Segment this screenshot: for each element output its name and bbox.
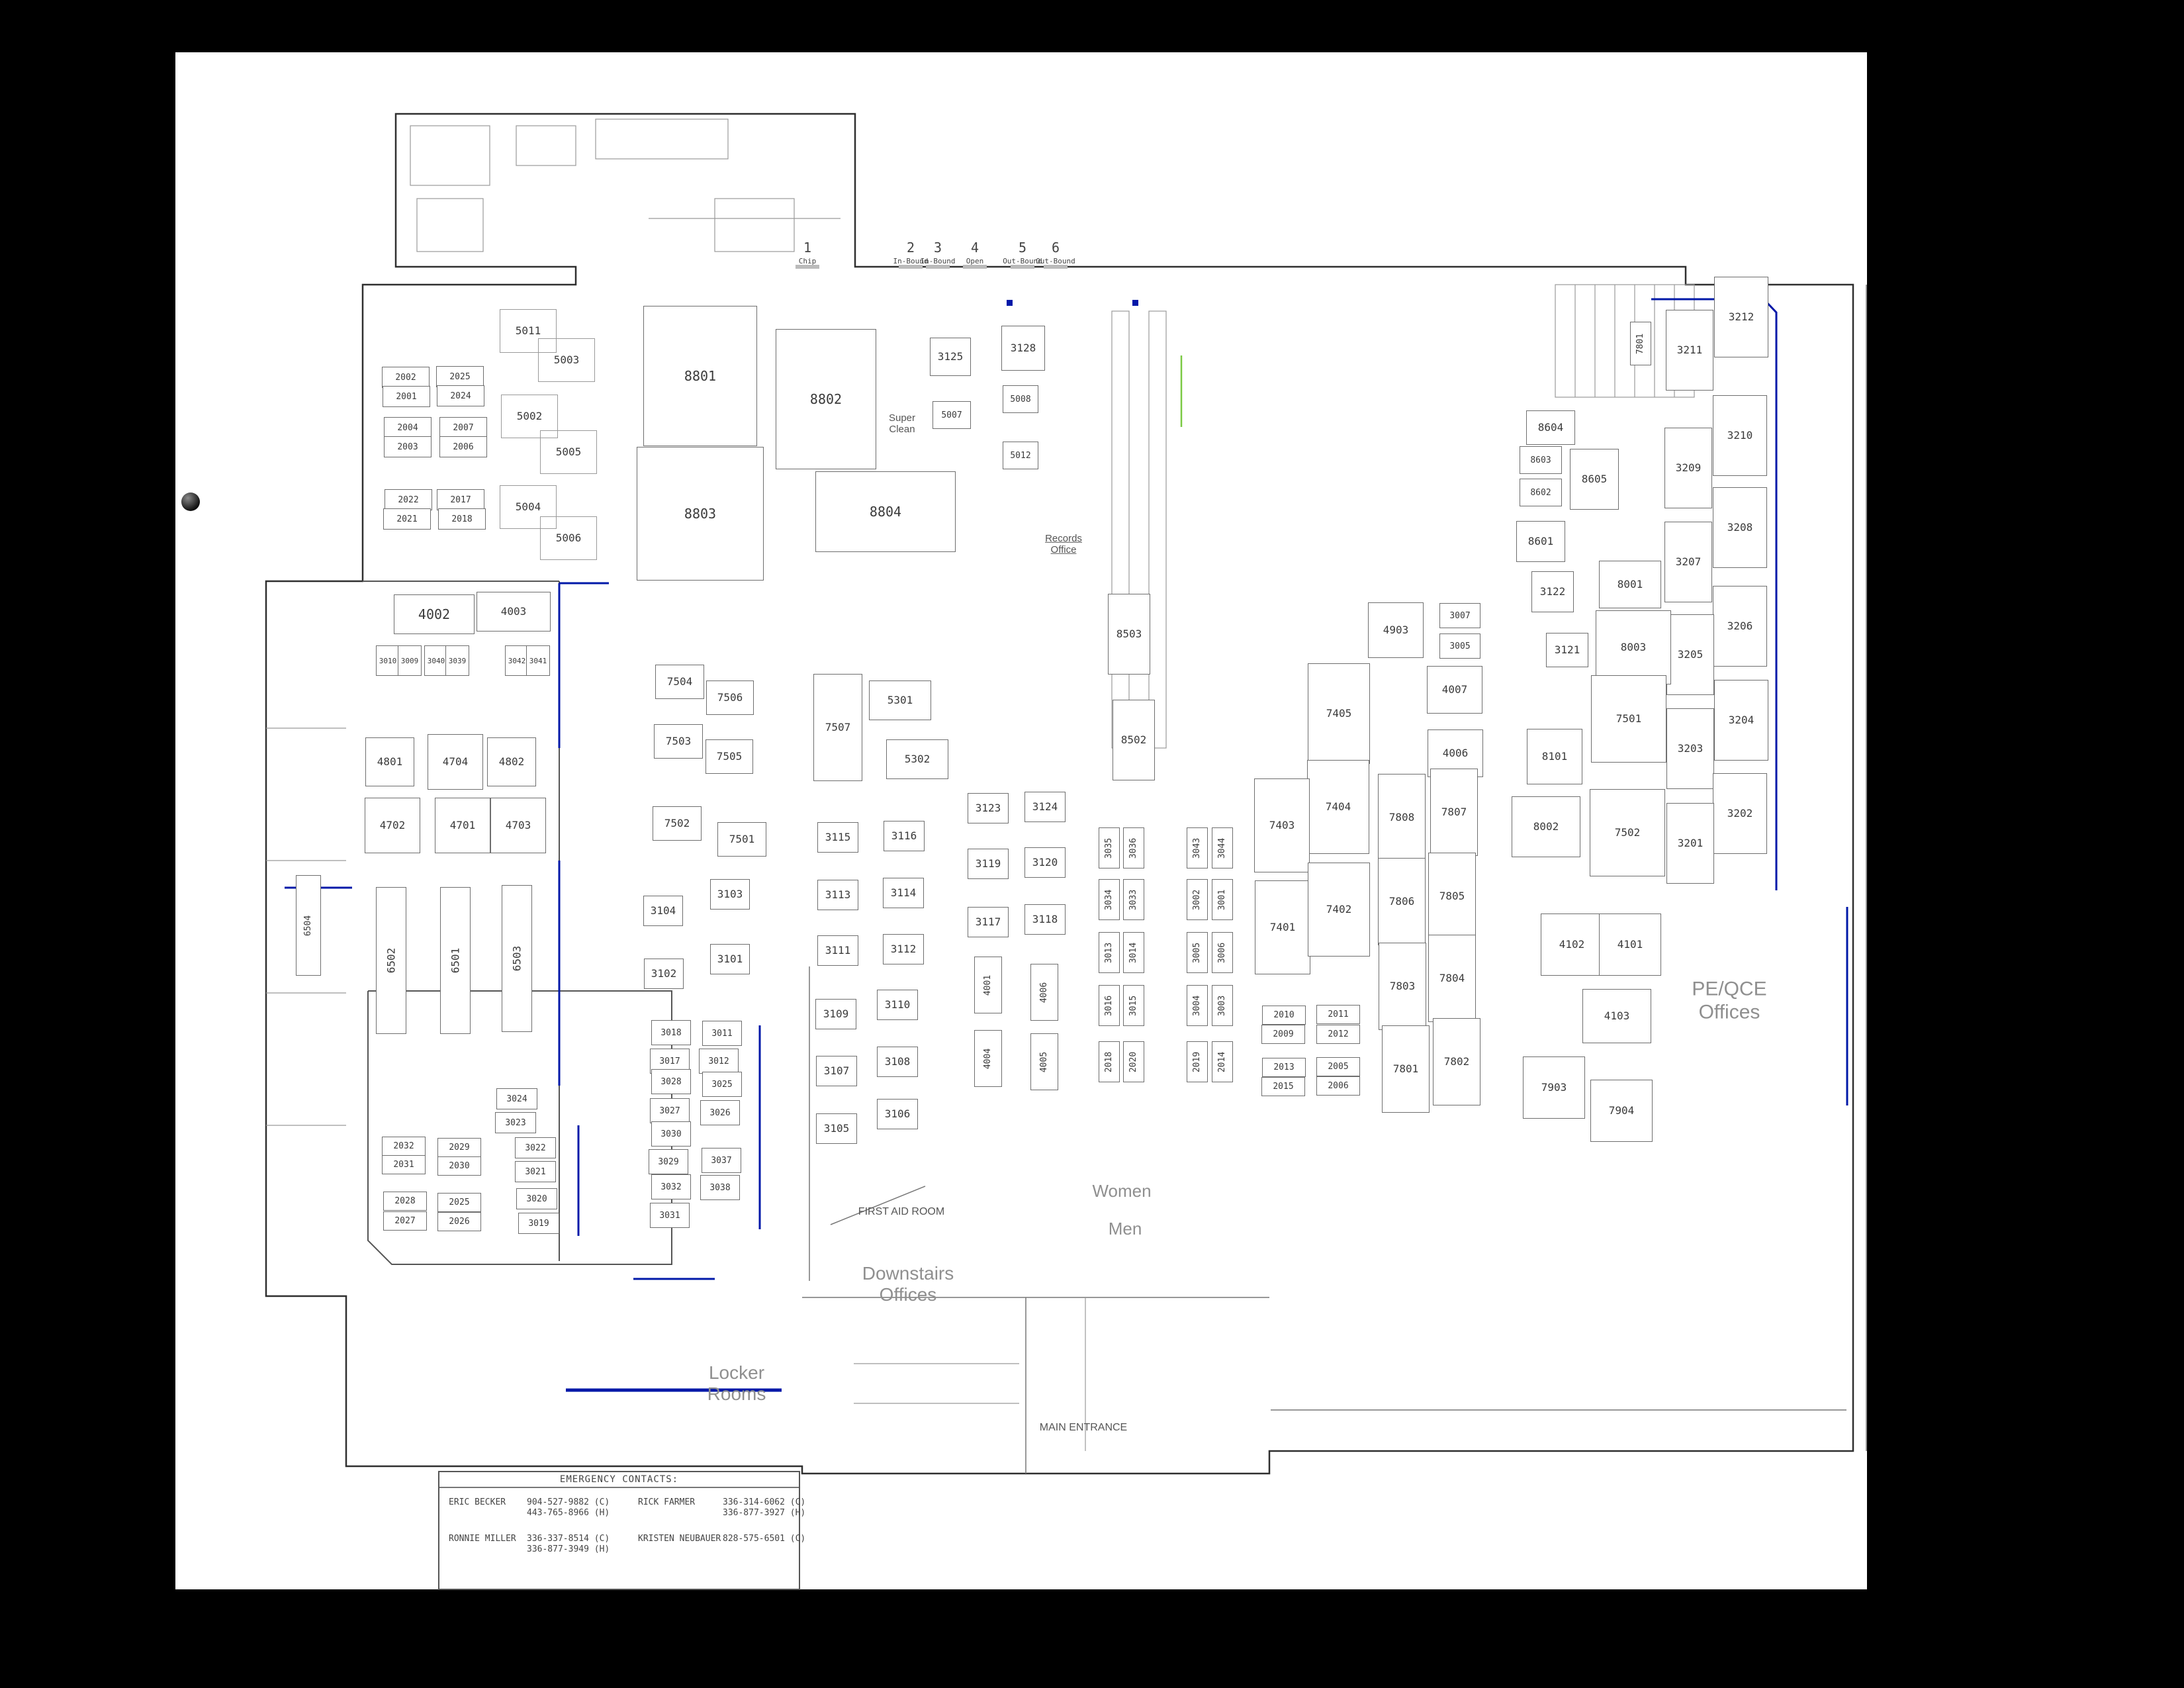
room-box: 7904 [1590, 1080, 1653, 1142]
room-label: 3203 [1678, 743, 1704, 754]
room-label: 3039 [449, 657, 467, 665]
room-box: 7808 [1378, 774, 1426, 861]
room-box: 2004 [384, 417, 432, 438]
room-label: 3032 [660, 1183, 681, 1192]
room-label: 3037 [711, 1156, 731, 1165]
area-label: Women [1092, 1182, 1151, 1201]
contact-phone: 336-314-6062 (C) [723, 1497, 808, 1508]
room-box: 2020 [1123, 1041, 1144, 1082]
room-box: 7501 [1591, 675, 1666, 763]
room-label: 4802 [499, 757, 525, 767]
room-label: 8601 [1528, 536, 1554, 547]
room-label: 3019 [528, 1219, 549, 1228]
room-label: 3113 [825, 890, 851, 900]
room-label: 7904 [1609, 1105, 1635, 1116]
room-box: 8803 [637, 447, 764, 581]
dock-number: 4 [948, 240, 1001, 256]
room-box: 7504 [655, 665, 704, 699]
room-label: 3014 [1130, 942, 1138, 962]
room-box: 3115 [817, 822, 858, 853]
room-label: 3119 [976, 859, 1001, 869]
room-box: 3005 [1187, 932, 1208, 973]
room-box: 2011 [1316, 1005, 1360, 1024]
room-box: 7801 [1382, 1025, 1430, 1113]
room-label: 4003 [501, 606, 527, 617]
room-label: 4007 [1442, 684, 1468, 695]
room-label: 3122 [1540, 586, 1566, 597]
room-label: 4801 [377, 757, 403, 767]
room-box: 3103 [710, 879, 750, 910]
room-label: 8603 [1530, 456, 1551, 465]
room-label: 7801 [1393, 1064, 1419, 1074]
room-label: 2007 [453, 424, 473, 432]
room-label: 5007 [941, 411, 962, 420]
room-box: 8002 [1512, 796, 1580, 857]
room-box: 2013 [1262, 1058, 1306, 1077]
room-box: 3020 [516, 1188, 557, 1209]
room-box: 2006 [1316, 1076, 1360, 1096]
room-label: 3120 [1032, 857, 1058, 868]
room-label: 3042 [508, 657, 526, 665]
room-box: 3034 [1099, 879, 1120, 920]
room-box: 7502 [1590, 789, 1665, 876]
room-box: 7507 [813, 674, 862, 781]
room-label: 5002 [517, 411, 543, 422]
contact-name: RONNIE MILLER [449, 1534, 527, 1556]
room-box: 5003 [538, 338, 595, 382]
room-box: 7802 [1433, 1018, 1480, 1105]
room-box: 3205 [1666, 614, 1714, 695]
dock-number: 1 [781, 240, 834, 256]
room-box: 3035 [1099, 827, 1120, 868]
room-label: 5004 [516, 502, 541, 512]
room-label: 8001 [1617, 579, 1643, 590]
room-label: 7801 [1637, 333, 1645, 353]
room-label: 3207 [1676, 557, 1702, 567]
room-label: 3012 [708, 1057, 729, 1066]
room-label: 3023 [505, 1119, 525, 1127]
room-label: 3001 [1218, 889, 1227, 910]
dock-label: 6Out-Bound [1029, 240, 1082, 265]
room-label: 4002 [418, 608, 450, 621]
room-label: 4101 [1617, 939, 1643, 950]
room-label: 4001 [984, 974, 993, 995]
room-box: 3107 [816, 1056, 857, 1086]
room-box: 4903 [1368, 602, 1424, 658]
emergency-contacts-grid: ERIC BECKER904-527-9882 (C)443-765-8966 … [439, 1488, 799, 1555]
room-box: 3112 [883, 934, 924, 964]
room-box: 4802 [487, 737, 536, 786]
room-label: 7505 [717, 751, 743, 762]
room-box: 4704 [428, 734, 483, 790]
room-box: 3104 [643, 896, 683, 926]
room-label: 7403 [1269, 820, 1295, 831]
room-box: 3006 [1212, 932, 1233, 973]
room-box: 3013 [1099, 932, 1120, 973]
room-label: 7503 [666, 736, 692, 747]
contact-phones: 336-337-8514 (C)336-877-3949 (H) [527, 1534, 638, 1556]
room-box: 3117 [968, 907, 1009, 937]
room-label: 6503 [512, 946, 522, 972]
room-box: 2003 [384, 436, 432, 457]
room-box: 3010 [376, 645, 400, 676]
room-label: 5012 [1010, 451, 1030, 460]
room-box: 3207 [1664, 522, 1712, 602]
room-label: 8605 [1582, 474, 1608, 485]
room-label: 3016 [1105, 995, 1114, 1015]
dock-type: Open [948, 257, 1001, 265]
room-box: 2030 [437, 1156, 481, 1176]
room-box: 5007 [933, 401, 971, 429]
contact-phones: 828-575-6501 (C) [723, 1534, 808, 1556]
room-label: 7507 [825, 722, 851, 733]
room-label: 7501 [729, 834, 755, 845]
room-label: 7502 [664, 818, 690, 829]
room-label: 7405 [1326, 708, 1352, 719]
room-box: 3003 [1212, 985, 1233, 1026]
room-label: 7804 [1439, 973, 1465, 984]
floor-plan-walls [0, 0, 2184, 1688]
room-label: 2001 [396, 393, 416, 401]
contact-name: RICK FARMER [638, 1497, 723, 1519]
room-label: 8101 [1542, 751, 1568, 762]
room-label: 4702 [380, 820, 406, 831]
room-box: 4703 [490, 798, 546, 853]
room-box: 5301 [869, 680, 931, 720]
room-label: 2025 [449, 373, 470, 381]
area-label: MAIN ENTRANCE [1040, 1422, 1127, 1434]
room-box: 4701 [435, 798, 490, 853]
room-box: 3111 [817, 935, 858, 966]
room-box: 3025 [702, 1072, 742, 1097]
room-box: 8804 [815, 471, 956, 552]
room-label: 3036 [1130, 837, 1138, 858]
room-label: 3010 [379, 657, 397, 665]
room-box: 8001 [1599, 561, 1661, 608]
room-box: 2012 [1316, 1025, 1360, 1044]
room-box: 2002 [382, 367, 430, 388]
room-label: 3026 [709, 1109, 730, 1117]
room-label: 3117 [976, 917, 1001, 927]
room-box: 8605 [1570, 449, 1619, 510]
area-label: Locker Rooms [707, 1362, 766, 1405]
room-label: 2029 [449, 1143, 469, 1152]
room-box: 8502 [1113, 700, 1155, 780]
room-label: 5008 [1010, 395, 1030, 404]
room-label: 2005 [1328, 1062, 1348, 1071]
room-label: 8803 [684, 507, 716, 520]
room-box: 7405 [1308, 663, 1370, 764]
room-label: 3020 [526, 1195, 547, 1203]
room-box: 6504 [296, 875, 321, 976]
room-box: 3118 [1024, 904, 1066, 935]
room-box: 4001 [974, 957, 1002, 1013]
room-label: 2028 [394, 1197, 415, 1205]
room-box: 3211 [1666, 310, 1713, 391]
room-label: 5301 [887, 695, 913, 706]
room-label: 8802 [810, 393, 842, 406]
room-box: 2010 [1262, 1006, 1306, 1025]
room-box: 3203 [1666, 708, 1714, 789]
room-box: 3001 [1212, 879, 1233, 920]
room-label: 5302 [905, 754, 931, 765]
room-label: 3101 [717, 954, 743, 964]
area-label: Super Clean [889, 412, 915, 436]
room-box: 8603 [1520, 446, 1562, 474]
room-box: 3011 [702, 1021, 742, 1046]
room-box: 3209 [1664, 428, 1712, 508]
room-label: 7802 [1444, 1056, 1470, 1067]
room-box: 3128 [1001, 326, 1045, 371]
room-box: 2022 [385, 489, 432, 510]
room-label: 3104 [651, 906, 676, 916]
room-label: 3212 [1729, 312, 1754, 322]
room-box: 2031 [382, 1155, 426, 1174]
room-label: 7806 [1389, 896, 1415, 907]
room-label: 3011 [711, 1029, 732, 1038]
room-box: 3004 [1187, 985, 1208, 1026]
room-box: 2006 [439, 436, 487, 457]
room-box: 7804 [1428, 935, 1476, 1022]
room-box: 7502 [653, 806, 702, 841]
room-box: 2001 [383, 386, 430, 407]
area-label: Downstairs Offices [862, 1263, 954, 1305]
room-box: 2025 [436, 366, 484, 387]
room-label: 3034 [1105, 889, 1114, 910]
room-label: 3102 [651, 968, 677, 979]
room-label: 3108 [885, 1056, 911, 1067]
room-label: 3021 [525, 1168, 545, 1176]
room-label: 8003 [1621, 642, 1647, 653]
room-label: 2006 [1328, 1082, 1348, 1090]
area-label: Men [1109, 1219, 1142, 1239]
room-box: 4006 [1030, 964, 1058, 1021]
room-label: 3209 [1676, 463, 1702, 473]
room-box: 7403 [1254, 778, 1310, 872]
room-box: 4002 [394, 594, 475, 634]
room-label: 3114 [891, 888, 917, 898]
dock-type: Out-Bound [1029, 257, 1082, 265]
room-box: 3044 [1212, 827, 1233, 868]
room-label: 7401 [1270, 922, 1296, 933]
room-label: 4103 [1604, 1011, 1630, 1021]
room-box: 8101 [1527, 729, 1582, 784]
room-label: 3210 [1727, 430, 1753, 441]
contact-phone: 443-765-8966 (H) [527, 1508, 638, 1519]
room-label: 3118 [1032, 914, 1058, 925]
room-box: 8801 [643, 306, 757, 446]
room-label: 7504 [667, 677, 693, 687]
contact-phones: 904-527-9882 (C)443-765-8966 (H) [527, 1497, 638, 1519]
area-label: Records Office [1045, 533, 1082, 556]
emergency-contacts-table: EMERGENCY CONTACTS: ERIC BECKER904-527-9… [438, 1471, 800, 1590]
room-box: 3201 [1666, 803, 1714, 884]
room-box: 3019 [518, 1213, 559, 1234]
room-box: 4102 [1541, 914, 1603, 976]
room-box: 7402 [1308, 863, 1370, 957]
room-box: 3206 [1713, 586, 1767, 667]
room-label: 2006 [453, 443, 473, 451]
room-box: 3026 [700, 1100, 740, 1125]
room-label: 7402 [1326, 904, 1352, 915]
room-box: 4103 [1582, 989, 1651, 1043]
room-box: 3030 [651, 1121, 691, 1147]
room-label: 3202 [1727, 808, 1753, 819]
room-box: 6502 [376, 887, 406, 1034]
room-box: 7903 [1523, 1056, 1585, 1119]
room-label: 2025 [449, 1198, 469, 1207]
dock-type: Chip [781, 257, 834, 265]
room-label: 5003 [554, 355, 580, 365]
room-label: 2026 [449, 1217, 469, 1226]
room-box: 5302 [886, 739, 948, 779]
room-box: 2027 [383, 1211, 427, 1231]
room-box: 8802 [776, 329, 876, 469]
room-box: 3029 [649, 1149, 688, 1174]
area-label: PE/QCE Offices [1692, 978, 1766, 1024]
contact-phones: 336-314-6062 (C)336-877-3927 (H) [723, 1497, 808, 1519]
room-label: 2002 [395, 373, 416, 382]
room-label: 4903 [1383, 625, 1409, 635]
room-box: 2017 [437, 489, 484, 510]
room-label: 2022 [398, 496, 418, 504]
room-box: 3043 [1187, 827, 1208, 868]
room-box: 7503 [654, 724, 703, 759]
room-label: 3017 [659, 1057, 680, 1066]
room-box: 3041 [526, 645, 550, 676]
room-label: 3013 [1105, 942, 1114, 962]
room-box: 7805 [1428, 853, 1476, 940]
room-box: 3039 [445, 645, 469, 676]
room-box: 3007 [1439, 603, 1480, 628]
room-label: 3009 [401, 657, 419, 665]
room-box: 2007 [439, 417, 487, 438]
room-box: 7401 [1255, 880, 1310, 974]
room-label: 3027 [659, 1107, 680, 1115]
room-label: 3022 [525, 1144, 545, 1152]
room-box: 3110 [877, 990, 918, 1020]
room-box: 3037 [702, 1148, 741, 1173]
room-label: 3018 [660, 1029, 681, 1037]
room-label: 5005 [556, 447, 582, 457]
room-label: 2009 [1273, 1030, 1293, 1039]
room-box: 3123 [968, 793, 1009, 823]
room-label: 3206 [1727, 621, 1753, 632]
area-label: FIRST AID ROOM [858, 1206, 944, 1218]
room-box: 3122 [1531, 571, 1574, 612]
room-box: 3009 [398, 645, 422, 676]
room-label: 2027 [394, 1217, 415, 1225]
room-box: 3036 [1123, 827, 1144, 868]
room-label: 3123 [976, 803, 1001, 814]
room-box: 7803 [1379, 943, 1426, 1030]
room-label: 7502 [1615, 827, 1641, 838]
room-label: 3204 [1729, 715, 1754, 726]
room-box: 2015 [1261, 1077, 1305, 1096]
room-box: 2018 [1099, 1041, 1120, 1082]
room-box: 2014 [1212, 1041, 1233, 1082]
room-label: 3029 [658, 1158, 678, 1166]
room-box: 5008 [1003, 385, 1038, 413]
room-label: 4005 [1040, 1051, 1049, 1072]
room-box: 4801 [365, 737, 414, 786]
room-label: 4004 [984, 1048, 993, 1068]
room-label: 5006 [556, 533, 582, 543]
room-box: 3212 [1714, 277, 1768, 357]
room-label: 2031 [393, 1160, 414, 1169]
room-label: 2021 [396, 515, 417, 524]
room-label: 2024 [450, 392, 471, 400]
room-label: 8602 [1530, 489, 1551, 497]
room-label: 3044 [1218, 837, 1227, 858]
room-box: 3023 [495, 1112, 536, 1133]
room-box: 3042 [505, 645, 529, 676]
dock-label: 1Chip [781, 240, 834, 265]
room-label: 8502 [1121, 735, 1147, 745]
room-box: 3028 [651, 1069, 691, 1094]
room-box: 3038 [700, 1175, 740, 1200]
room-box: 3108 [877, 1047, 918, 1077]
room-label: 3208 [1727, 522, 1753, 533]
room-box: 8602 [1520, 479, 1562, 506]
dock-number: 6 [1029, 240, 1082, 256]
room-label: 7808 [1389, 812, 1415, 823]
room-box: 3002 [1187, 879, 1208, 920]
room-box: 3102 [644, 959, 684, 989]
room-label: 8604 [1538, 422, 1564, 433]
room-box: 4101 [1599, 914, 1661, 976]
room-box: 3125 [930, 338, 971, 376]
room-box: 2019 [1187, 1041, 1208, 1082]
room-label: 4006 [1443, 748, 1469, 759]
room-box: 3005 [1439, 633, 1480, 659]
room-label: 7903 [1541, 1082, 1567, 1093]
room-box: 3105 [816, 1113, 857, 1144]
room-label: 2030 [449, 1162, 469, 1170]
room-label: 3033 [1130, 889, 1138, 910]
room-label: 7803 [1390, 981, 1416, 992]
room-box: 3113 [817, 880, 858, 910]
contact-phone: 336-877-3949 (H) [527, 1544, 638, 1555]
room-box: 8003 [1596, 610, 1671, 684]
room-box: 2029 [437, 1138, 481, 1157]
room-box: 3018 [651, 1020, 691, 1045]
room-box: 4004 [974, 1030, 1002, 1087]
room-label: 2018 [451, 515, 472, 524]
room-label: 3201 [1678, 838, 1704, 849]
room-label: 3125 [938, 352, 964, 362]
room-label: 7501 [1616, 714, 1642, 724]
room-label: 3002 [1193, 889, 1202, 910]
room-box: 3114 [883, 878, 924, 908]
room-label: 3103 [717, 889, 743, 900]
room-box: 7801 [1630, 322, 1651, 365]
room-label: 3111 [825, 945, 851, 956]
room-label: 3006 [1218, 942, 1227, 962]
room-box: 2028 [383, 1192, 427, 1211]
room-box: 3031 [650, 1203, 690, 1228]
room-label: 7404 [1326, 802, 1351, 812]
room-label: 3112 [891, 944, 917, 955]
room-label: 4006 [1040, 982, 1049, 1002]
room-label: 3005 [1193, 942, 1202, 962]
room-box: 4007 [1427, 666, 1482, 714]
room-label: 3124 [1032, 802, 1058, 812]
room-label: 4703 [506, 820, 531, 831]
room-label: 3128 [1011, 343, 1036, 353]
room-box: 7806 [1378, 858, 1426, 945]
room-box: 3016 [1099, 985, 1120, 1026]
